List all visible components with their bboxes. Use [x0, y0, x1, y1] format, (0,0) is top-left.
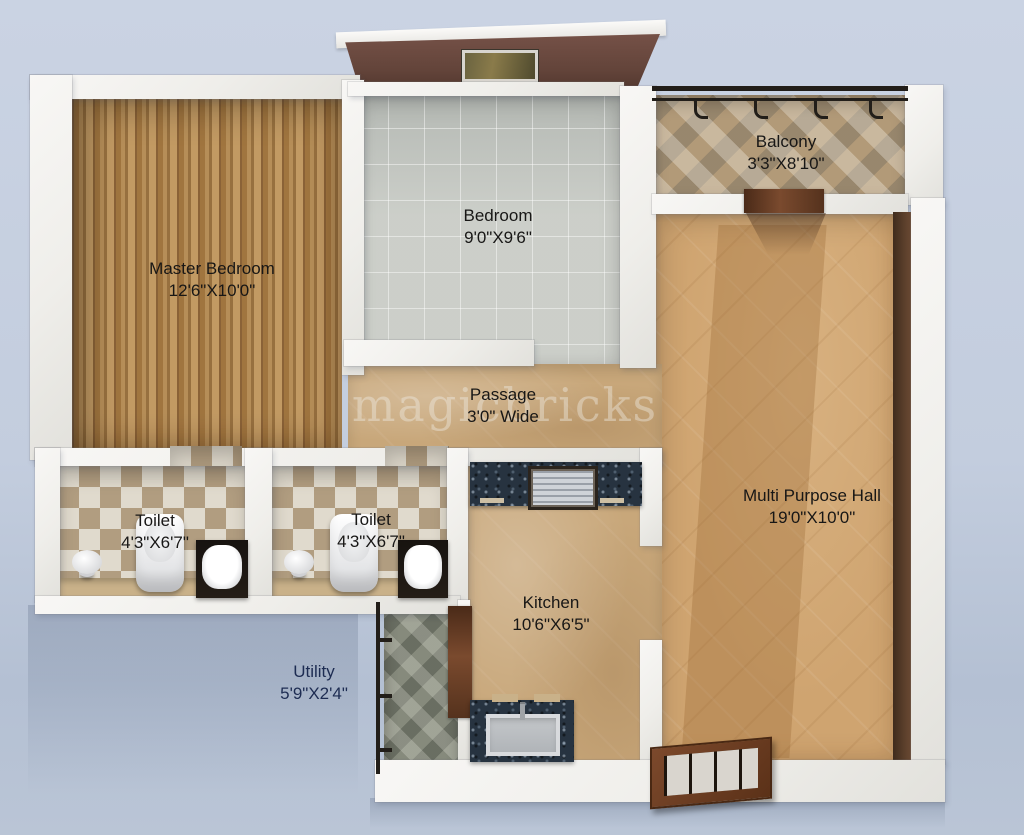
- balcony-railing-hook: [694, 100, 708, 119]
- kitchen-counter-handle: [600, 498, 624, 503]
- room-name: Toilet: [291, 509, 451, 531]
- balcony-railing-hook: [754, 100, 768, 119]
- room-dims: 5'9"X2'4": [214, 683, 414, 705]
- room-label-toilet2: Toilet 4'3"X6'7": [291, 509, 451, 553]
- toilet-wall-bottom: [35, 596, 460, 614]
- kitchen-faucet: [520, 704, 525, 720]
- wall-picture-frame: [462, 50, 538, 82]
- room-name: Multi Purpose Hall: [672, 485, 952, 507]
- room-name: Utility: [214, 661, 414, 683]
- room-dims: 12'6"X10'0": [92, 280, 332, 302]
- room-label-master-bedroom: Master Bedroom 12'6"X10'0": [92, 258, 332, 302]
- toilet-divider-wall: [245, 448, 272, 600]
- balcony-wall-right: [905, 85, 943, 205]
- balcony-sliding-door: [744, 189, 824, 213]
- entrance-door-grid: [664, 748, 758, 796]
- master-bedroom-wall-right: [342, 80, 364, 375]
- room-dims: 3'3"X8'10": [686, 153, 886, 175]
- kitchen-hall-wall-upper: [640, 448, 662, 546]
- room-dims: 4'3"X6'7": [291, 531, 451, 553]
- room-name: Master Bedroom: [92, 258, 332, 280]
- hall-wall-right: [911, 198, 945, 764]
- room-label-passage: Passage 3'0" Wide: [403, 384, 603, 428]
- kitchen-sink-basin: [486, 714, 560, 756]
- room-name: Passage: [403, 384, 603, 406]
- room-name: Bedroom: [398, 205, 598, 227]
- utility-railing-bracket: [376, 748, 392, 752]
- room-name: Toilet: [75, 510, 235, 532]
- entrance-door: [650, 737, 772, 810]
- bedroom-wall-right: [620, 86, 656, 368]
- toilet1-door-opening: [170, 446, 242, 466]
- room-dims: 4'3"X6'7": [75, 532, 235, 554]
- toilet2-washbasin: [284, 550, 314, 574]
- master-bedroom-wall-top: [30, 75, 360, 99]
- room-name: Kitchen: [451, 592, 651, 614]
- room-name: Balcony: [686, 131, 886, 153]
- room-dims: 9'0"X9'6": [398, 227, 598, 249]
- room-label-kitchen: Kitchen 10'6"X6'5": [451, 592, 651, 636]
- kitchen-hall-wall-lower: [640, 640, 662, 764]
- bedroom-wall-top: [348, 82, 624, 96]
- room-label-hall: Multi Purpose Hall 19'0"X10'0": [672, 485, 952, 529]
- room-dims: 3'0" Wide: [403, 406, 603, 428]
- bedroom-wall-bottom: [344, 340, 534, 366]
- room-label-bedroom: Bedroom 9'0"X9'6": [398, 205, 598, 249]
- toilet1-wall-left: [35, 448, 60, 602]
- room-label-toilet1: Toilet 4'3"X6'7": [75, 510, 235, 554]
- floor-plan-canvas: magicbricks Master Bedroom 12'6"X10'0" B…: [0, 0, 1024, 835]
- toilet2-door-opening: [385, 446, 449, 466]
- balcony-railing-hook: [814, 100, 828, 119]
- room-label-utility: Utility 5'9"X2'4": [214, 661, 414, 705]
- room-dims: 10'6"X6'5": [451, 614, 651, 636]
- room-label-balcony: Balcony 3'3"X8'10": [686, 131, 886, 175]
- kitchen-counter-handle: [480, 498, 504, 503]
- kitchen-cabinet-doors: [528, 466, 598, 510]
- kitchen-counter-ledge: [492, 694, 518, 702]
- balcony-railing-hook: [869, 100, 883, 119]
- utility-railing-bracket: [376, 638, 392, 642]
- master-bedroom-wall-left: [30, 75, 72, 460]
- room-dims: 19'0"X10'0": [672, 507, 952, 529]
- balcony-railing-bar-top: [652, 86, 908, 91]
- kitchen-counter-ledge: [534, 694, 560, 702]
